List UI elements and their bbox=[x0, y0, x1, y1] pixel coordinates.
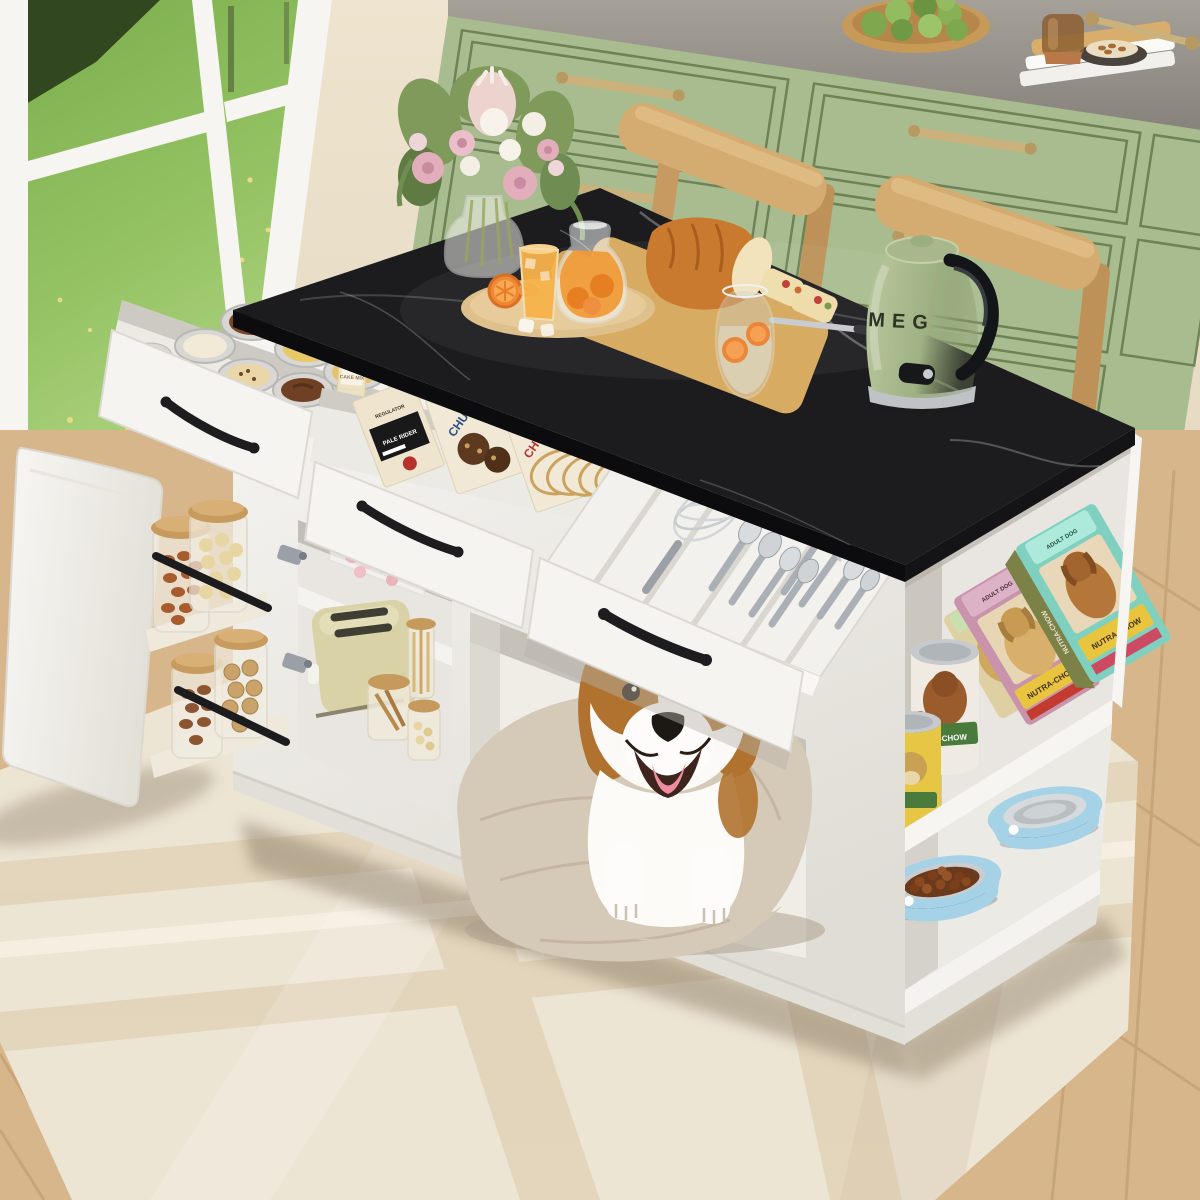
ice-cube bbox=[540, 323, 555, 337]
ice-cube bbox=[518, 318, 535, 333]
kitchen-island-product-photo: ADULT DOG NUTRA-CHOW NUTRA-CHOW ADULT DO… bbox=[0, 0, 1200, 1200]
amber-jar bbox=[1042, 14, 1084, 64]
juice-glass bbox=[520, 244, 558, 320]
scene-canvas: ADULT DOG NUTRA-CHOW NUTRA-CHOW ADULT DO… bbox=[0, 0, 1200, 1200]
nut-plate bbox=[1086, 40, 1138, 58]
kettle-brand-text: MEG bbox=[868, 309, 936, 334]
stemless-glass bbox=[716, 285, 774, 398]
